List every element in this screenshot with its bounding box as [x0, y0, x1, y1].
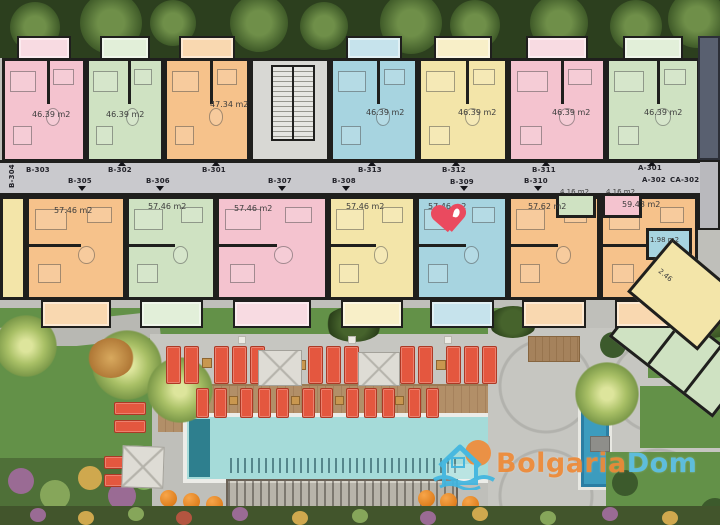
interior-wall	[331, 244, 376, 247]
door-arrow-up-icon	[452, 161, 460, 166]
neighbor-block-dark	[698, 36, 720, 160]
door-arrow-up-icon	[648, 161, 656, 166]
unit-number-label: B-308	[332, 177, 356, 185]
unit-number-label: B-306	[146, 177, 170, 185]
balcony	[100, 36, 150, 60]
balcony	[17, 36, 71, 60]
furniture-wardrobe	[660, 207, 684, 223]
furniture-bed	[134, 209, 163, 231]
area-label: 57.62 m2	[528, 202, 566, 211]
door-arrow-up-icon	[118, 161, 126, 166]
area-label: 57.46 m2	[148, 202, 186, 211]
door-arrow-up-icon	[542, 161, 550, 166]
interior-wall	[511, 244, 558, 247]
area-label: 46.39 m2	[106, 110, 144, 119]
apartment-unit-bottom[interactable]	[0, 196, 26, 300]
furniture-sofa	[13, 126, 32, 146]
furniture-table	[274, 246, 293, 264]
balcony	[522, 300, 586, 328]
door-arrow-up-icon	[368, 161, 376, 166]
furniture-bed	[614, 71, 644, 93]
stairs-rail	[292, 65, 294, 141]
furniture-wardrobe	[53, 69, 73, 85]
balcony	[346, 36, 402, 60]
furniture-table	[464, 246, 479, 264]
interior-wall	[657, 61, 660, 104]
interior-wall	[129, 244, 175, 247]
balcony	[430, 300, 494, 328]
interior-wall	[47, 61, 50, 104]
door-arrow-down-icon	[278, 186, 286, 191]
balcony	[623, 36, 683, 60]
interior-wall	[466, 61, 469, 104]
door-arrow-down-icon	[534, 186, 542, 191]
furniture-bed	[338, 71, 366, 93]
furniture-wardrobe	[217, 69, 238, 85]
furniture-sofa	[520, 126, 542, 146]
furniture-sofa	[520, 264, 541, 284]
unit-number-label: B-303	[26, 166, 50, 174]
balcony	[41, 300, 111, 328]
furniture-bed	[172, 71, 199, 93]
watermark-brand-part2: Dom	[627, 448, 698, 479]
area-label: 46.39 m2	[644, 108, 682, 117]
furniture-table	[78, 246, 95, 264]
interior-wall	[29, 244, 81, 247]
unit-number-label: B-305	[68, 177, 92, 185]
furniture-sofa	[137, 264, 157, 284]
furniture-table	[556, 246, 571, 264]
unit-number-label: B-307	[268, 177, 292, 185]
area-label: 46.39 m2	[366, 108, 404, 117]
neighbor-block-gray	[698, 160, 720, 230]
furniture-bed	[426, 71, 455, 93]
furniture-bed	[517, 71, 548, 93]
furniture-bed	[336, 209, 364, 231]
interior-wall	[128, 61, 131, 104]
apartment-unit-bottom[interactable]	[126, 196, 216, 300]
door-arrow-down-icon	[78, 186, 86, 191]
unit-number-label: A-302	[642, 176, 666, 184]
furniture-wardrobe	[384, 69, 405, 85]
unit-number-label: B-313	[358, 166, 382, 174]
area-label: 46.39 m2	[552, 108, 590, 117]
door-arrow-down-icon	[460, 186, 468, 191]
watermark-logo-icon	[432, 438, 496, 490]
furniture-sofa	[230, 264, 255, 284]
furniture-sofa	[175, 126, 194, 146]
balcony	[434, 36, 492, 60]
unit-number-label: B-312	[442, 166, 466, 174]
area-label: 1.98 m2	[650, 236, 679, 244]
area-label: 47.34 m2	[210, 100, 248, 109]
area-label: 4.16 m2	[606, 188, 635, 196]
area-label: 57.46 m2	[54, 206, 92, 215]
furniture-sofa	[339, 264, 359, 284]
unit-number-label: B-309	[450, 178, 474, 186]
furniture-sofa	[612, 264, 634, 284]
heart-favorite-icon[interactable]	[431, 204, 467, 236]
furniture-wardrobe	[473, 69, 495, 85]
watermark: BolgariaDom	[432, 438, 697, 490]
furniture-wardrobe	[285, 207, 313, 223]
door-arrow-up-icon	[212, 161, 220, 166]
furniture-sofa	[429, 126, 449, 146]
interior-wall	[419, 244, 466, 247]
site-plan-render: 46.39 m246.39 m247.34 m246.39 m246.39 m2…	[0, 0, 720, 525]
furniture-table	[209, 108, 223, 126]
furniture-wardrobe	[568, 69, 592, 85]
interior-wall	[210, 61, 213, 104]
furniture-wardrobe	[382, 207, 403, 223]
area-label: 46.39 m2	[458, 108, 496, 117]
interior-wall	[561, 61, 564, 104]
furniture-bed	[516, 209, 545, 231]
area-label: 57.46 m2	[346, 202, 384, 211]
heart-gloss	[453, 208, 461, 218]
furniture-table	[374, 246, 389, 264]
interior-wall	[219, 244, 277, 247]
balcony	[233, 300, 311, 328]
furniture-table	[173, 246, 188, 264]
area-label: 59.43 m2	[622, 200, 660, 209]
furniture-sofa	[38, 264, 61, 284]
furniture-wardrobe	[472, 207, 494, 223]
apartment-unit-bottom[interactable]	[328, 196, 416, 300]
furniture-wardrobe	[134, 69, 153, 85]
unit-number-label: B-311	[532, 166, 556, 174]
area-label: 57.46 m2	[234, 204, 272, 213]
area-label: 2.46	[657, 267, 674, 283]
balcony	[526, 36, 589, 60]
unit-number-label: B-301	[202, 166, 226, 174]
furniture-sofa	[341, 126, 361, 146]
unit-number-label: B-304	[8, 164, 16, 188]
unit-number-label: B-310	[524, 177, 548, 185]
area-label: 46.39 m2	[32, 110, 70, 119]
door-arrow-down-icon	[156, 186, 164, 191]
unit-number-label: B-302	[108, 166, 132, 174]
furniture-sofa	[618, 126, 639, 146]
balcony	[341, 300, 403, 328]
watermark-brand-part1: Bolgaria	[496, 448, 627, 479]
furniture-bed	[93, 71, 117, 93]
interior-wall	[377, 61, 380, 104]
furniture-sofa	[96, 126, 113, 146]
staircase[interactable]	[250, 58, 330, 162]
door-arrow-down-icon	[342, 186, 350, 191]
unit-number-label: CA-302	[670, 176, 699, 184]
furniture-sofa	[428, 264, 449, 284]
area-label: 4.16 m2	[560, 188, 589, 196]
furniture-wardrobe	[664, 69, 687, 85]
furniture-bed	[10, 71, 37, 93]
balcony	[140, 300, 203, 328]
balcony	[179, 36, 234, 60]
apartment-unit-top[interactable]	[164, 58, 250, 162]
